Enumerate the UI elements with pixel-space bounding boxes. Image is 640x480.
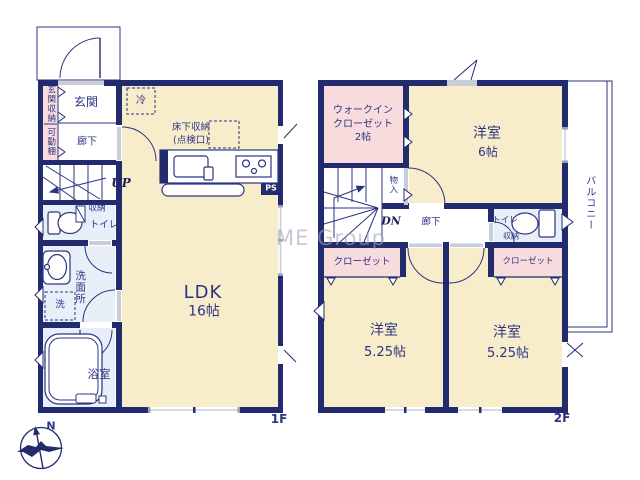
closet-east-fill	[494, 248, 562, 277]
floorplan-canvas: ME Group 玄関収納 可動棚 玄関 廊下 冷 床下収納 (点検口) UP …	[0, 0, 640, 480]
kitchen-island	[162, 184, 244, 196]
room-bedroom6-fill	[409, 86, 562, 203]
room-ldk-fill	[122, 86, 278, 407]
room-wic-fill	[324, 86, 403, 163]
closet-west-fill	[324, 248, 400, 277]
room-entrance-storage-fill	[43, 86, 58, 160]
toilet2f-tank	[539, 210, 555, 237]
toilet2f-bowl	[512, 213, 538, 234]
stairs-1f	[43, 165, 106, 200]
stairs-2f	[324, 168, 378, 242]
balcony-outline	[568, 81, 612, 332]
floorplan-drawing	[0, 0, 640, 480]
porch-outline	[37, 27, 120, 80]
kitchen-sink	[174, 156, 208, 177]
ps-box	[261, 183, 281, 195]
balcony-inner-line	[568, 81, 607, 327]
compass	[17, 426, 64, 469]
